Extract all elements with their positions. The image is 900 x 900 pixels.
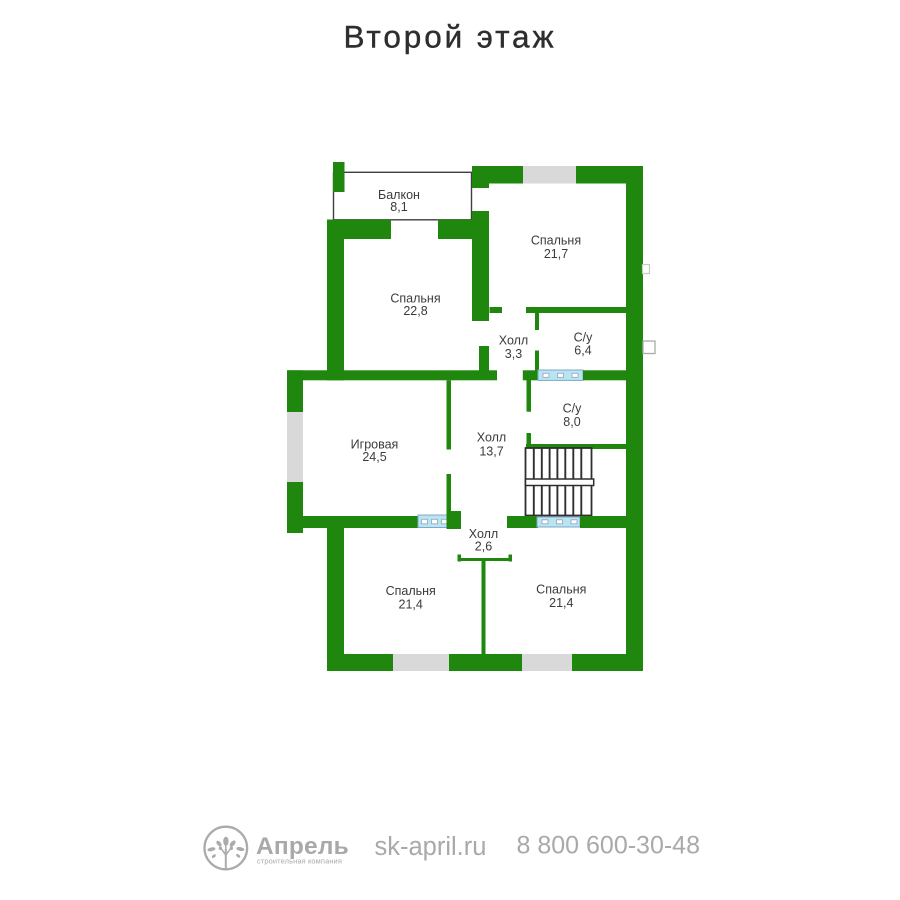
svg-text:21,7: 21,7 [544, 247, 568, 261]
svg-text:Второй этаж: Второй этаж [344, 19, 557, 55]
svg-text:Холл: Холл [477, 431, 506, 445]
svg-text:8,1: 8,1 [390, 200, 407, 214]
svg-text:22,8: 22,8 [403, 304, 427, 318]
svg-text:21,4: 21,4 [549, 596, 573, 610]
svg-text:Спальня: Спальня [536, 583, 586, 597]
svg-text:sk-april.ru: sk-april.ru [375, 833, 487, 861]
svg-text:Холл: Холл [499, 334, 528, 348]
svg-text:8,0: 8,0 [563, 415, 580, 429]
svg-text:6,4: 6,4 [574, 344, 591, 358]
svg-text:строительная компания: строительная компания [257, 857, 342, 866]
svg-text:С/у: С/у [563, 402, 583, 416]
svg-text:Спальня: Спальня [386, 584, 436, 598]
svg-text:С/у: С/у [574, 331, 594, 345]
svg-text:2,6: 2,6 [475, 539, 492, 553]
svg-text:8 800 600-30-48: 8 800 600-30-48 [517, 832, 700, 860]
svg-text:Спальня: Спальня [531, 234, 581, 248]
svg-text:3,3: 3,3 [505, 347, 522, 361]
svg-text:13,7: 13,7 [479, 445, 503, 459]
svg-text:21,4: 21,4 [399, 598, 423, 612]
svg-text:24,5: 24,5 [362, 450, 386, 464]
